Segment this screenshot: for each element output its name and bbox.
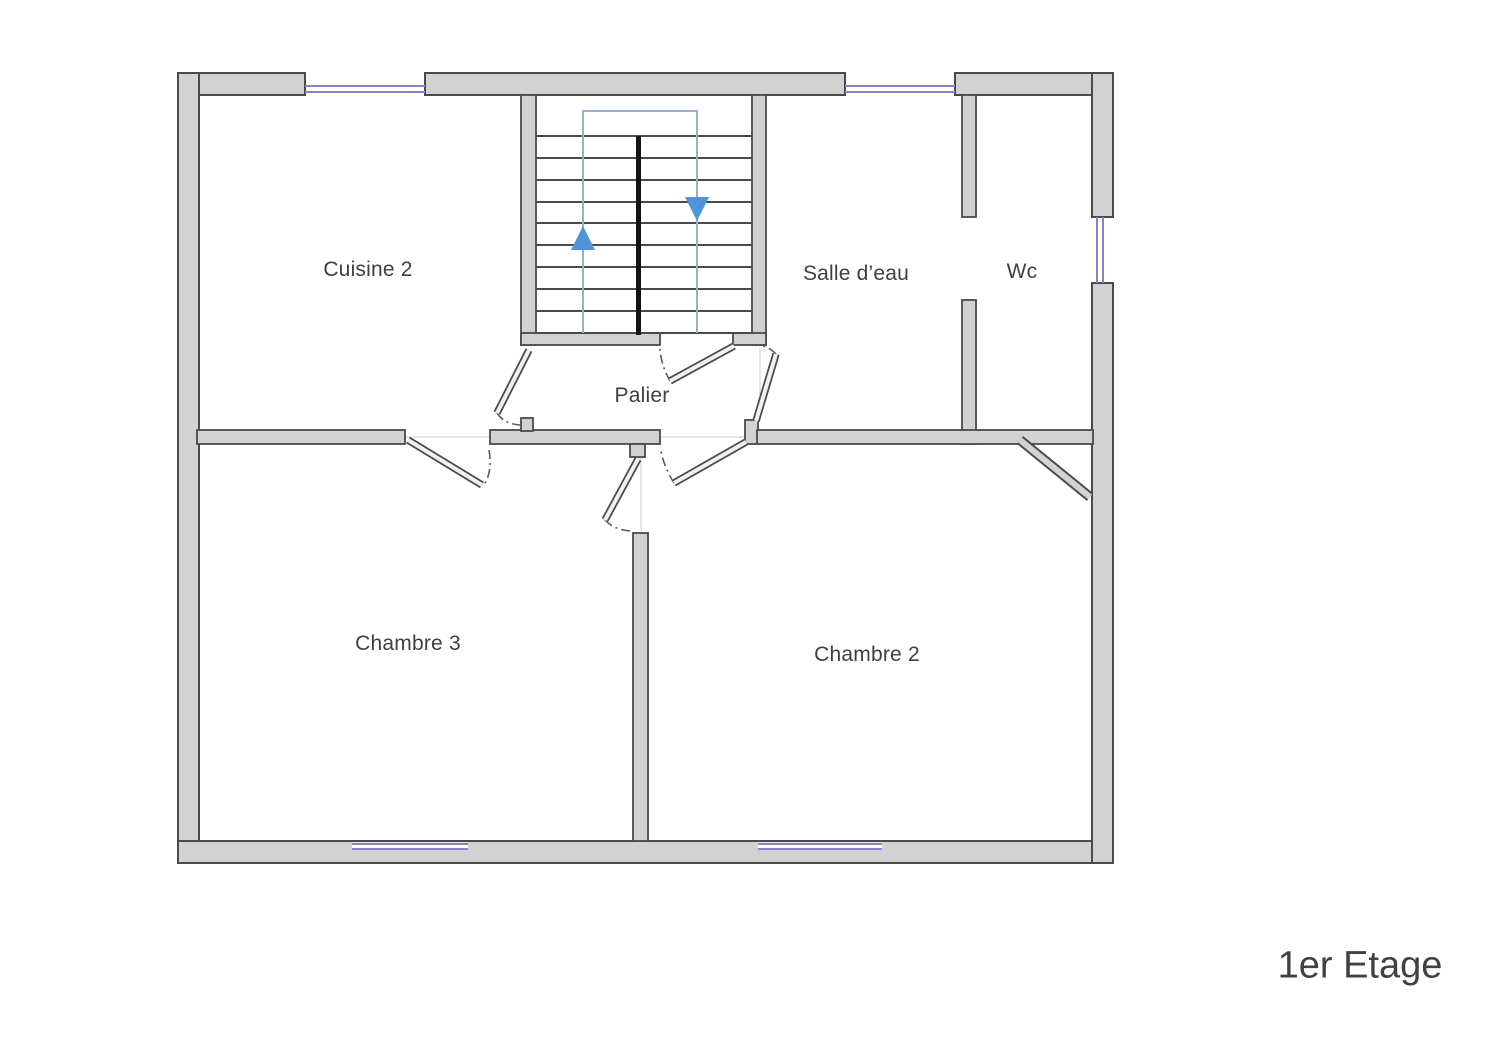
door-swing-cuisine-palier <box>497 413 520 425</box>
stair-up-arrow-icon <box>571 226 595 250</box>
room-label-palier: Palier <box>615 384 670 408</box>
door-swing-stairs <box>660 349 670 381</box>
wall-wc-partition-upper <box>962 95 976 217</box>
door-leaf-salle-eau <box>756 354 776 421</box>
wall-right-upper <box>1092 73 1113 217</box>
wall-top-right-segment <box>955 73 1113 95</box>
wall-salle-eau-door-jamb <box>745 420 758 444</box>
stair-down-arrow-icon <box>685 197 709 221</box>
stair-treads <box>536 136 752 333</box>
door-leaf-chambre3 <box>605 459 638 520</box>
wall-palier-stub <box>521 418 533 431</box>
room-label-chambre3: Chambre 3 <box>355 632 461 656</box>
floor-plan-drawing <box>0 0 1500 1052</box>
room-label-wc: Wc <box>1007 260 1038 284</box>
wall-mid-horizontal-east <box>757 430 1093 444</box>
room-label-salle-eau: Salle d’eau <box>803 262 909 286</box>
wall-mid-horizontal-center <box>490 430 660 444</box>
door-leaf-cuisine-chambre3 <box>408 440 482 485</box>
door-leaf-chambre2 <box>674 442 746 483</box>
wall-left <box>178 73 199 863</box>
floor-title: 1er Etage <box>1278 945 1443 988</box>
interior-walls <box>197 95 1093 841</box>
wall-stairwell-bottom-jamb <box>733 333 766 345</box>
door-swing-salle-eau <box>762 346 776 354</box>
door-leaf-stairs <box>670 346 734 381</box>
wall-bottom <box>178 841 1113 863</box>
wall-top-middle-segment <box>425 73 845 95</box>
wall-wc-partition-lower <box>962 300 976 444</box>
wall-stairwell-left <box>521 95 536 345</box>
door-swing-cuisine-chambre3 <box>483 450 490 486</box>
wall-stairwell-right <box>752 95 766 345</box>
door-swing-chambre2 <box>661 451 674 483</box>
stairwell <box>536 111 752 335</box>
room-label-cuisine2: Cuisine 2 <box>323 258 412 282</box>
wall-chambre-partition <box>633 533 648 841</box>
wall-right-lower <box>1092 283 1113 863</box>
wall-mid-horizontal-west <box>197 430 405 444</box>
door-swing-chambre3 <box>605 520 631 531</box>
room-label-chambre2: Chambre 2 <box>814 643 920 667</box>
wall-corner-diagonal <box>1020 440 1090 497</box>
floor-plan-canvas: Cuisine 2 Salle d’eau Wc Palier Chambre … <box>0 0 1500 1052</box>
door-leaf-cuisine-palier <box>497 350 529 413</box>
wall-chambre3-door-jamb <box>630 444 645 457</box>
